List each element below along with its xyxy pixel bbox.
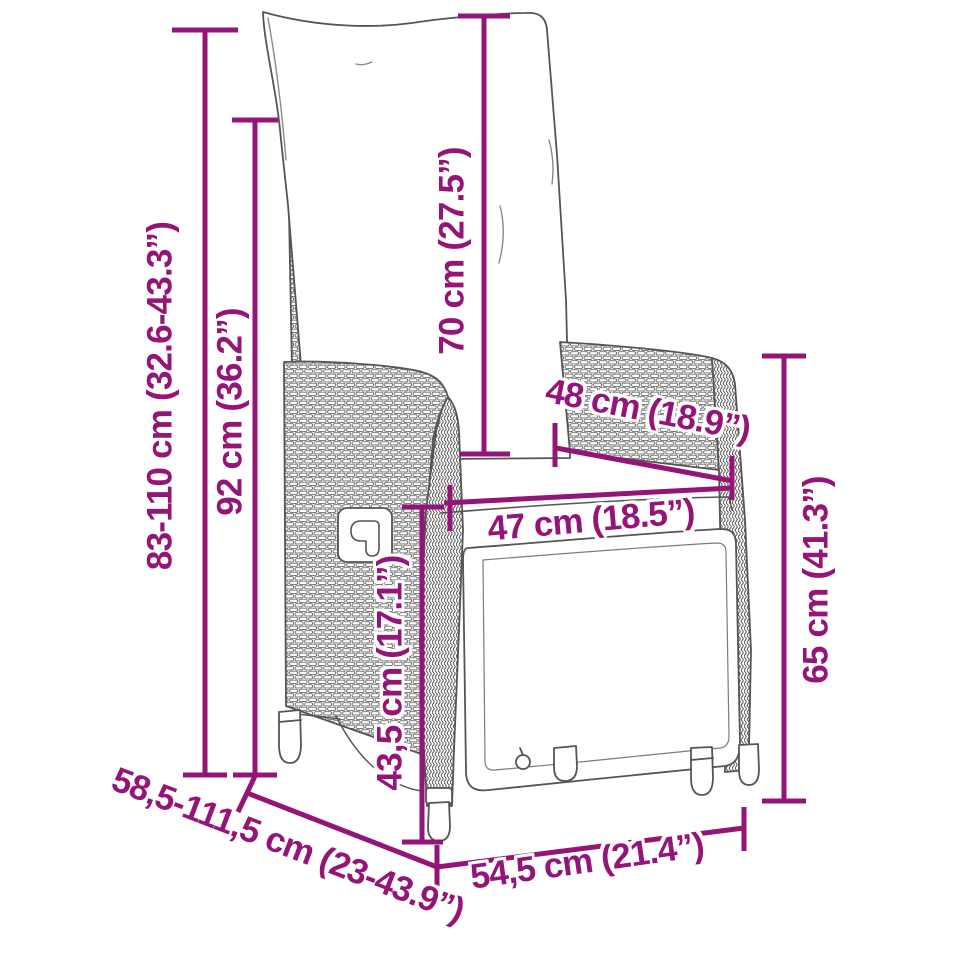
dim-line-total-height-range <box>172 30 238 775</box>
dim-line-armrest-height <box>762 356 806 801</box>
left-armrest <box>284 362 463 806</box>
chair-illustration <box>0 0 955 955</box>
recline-lever-icon <box>338 508 392 562</box>
dimension-diagram: 83-110 cm (32.6-43.3”) 92 cm (36.2”) 70 … <box>0 0 955 955</box>
dim-line-backrest-height <box>232 120 278 775</box>
dim-line-seat-width <box>444 485 732 531</box>
dim-line-total-width <box>437 807 744 889</box>
